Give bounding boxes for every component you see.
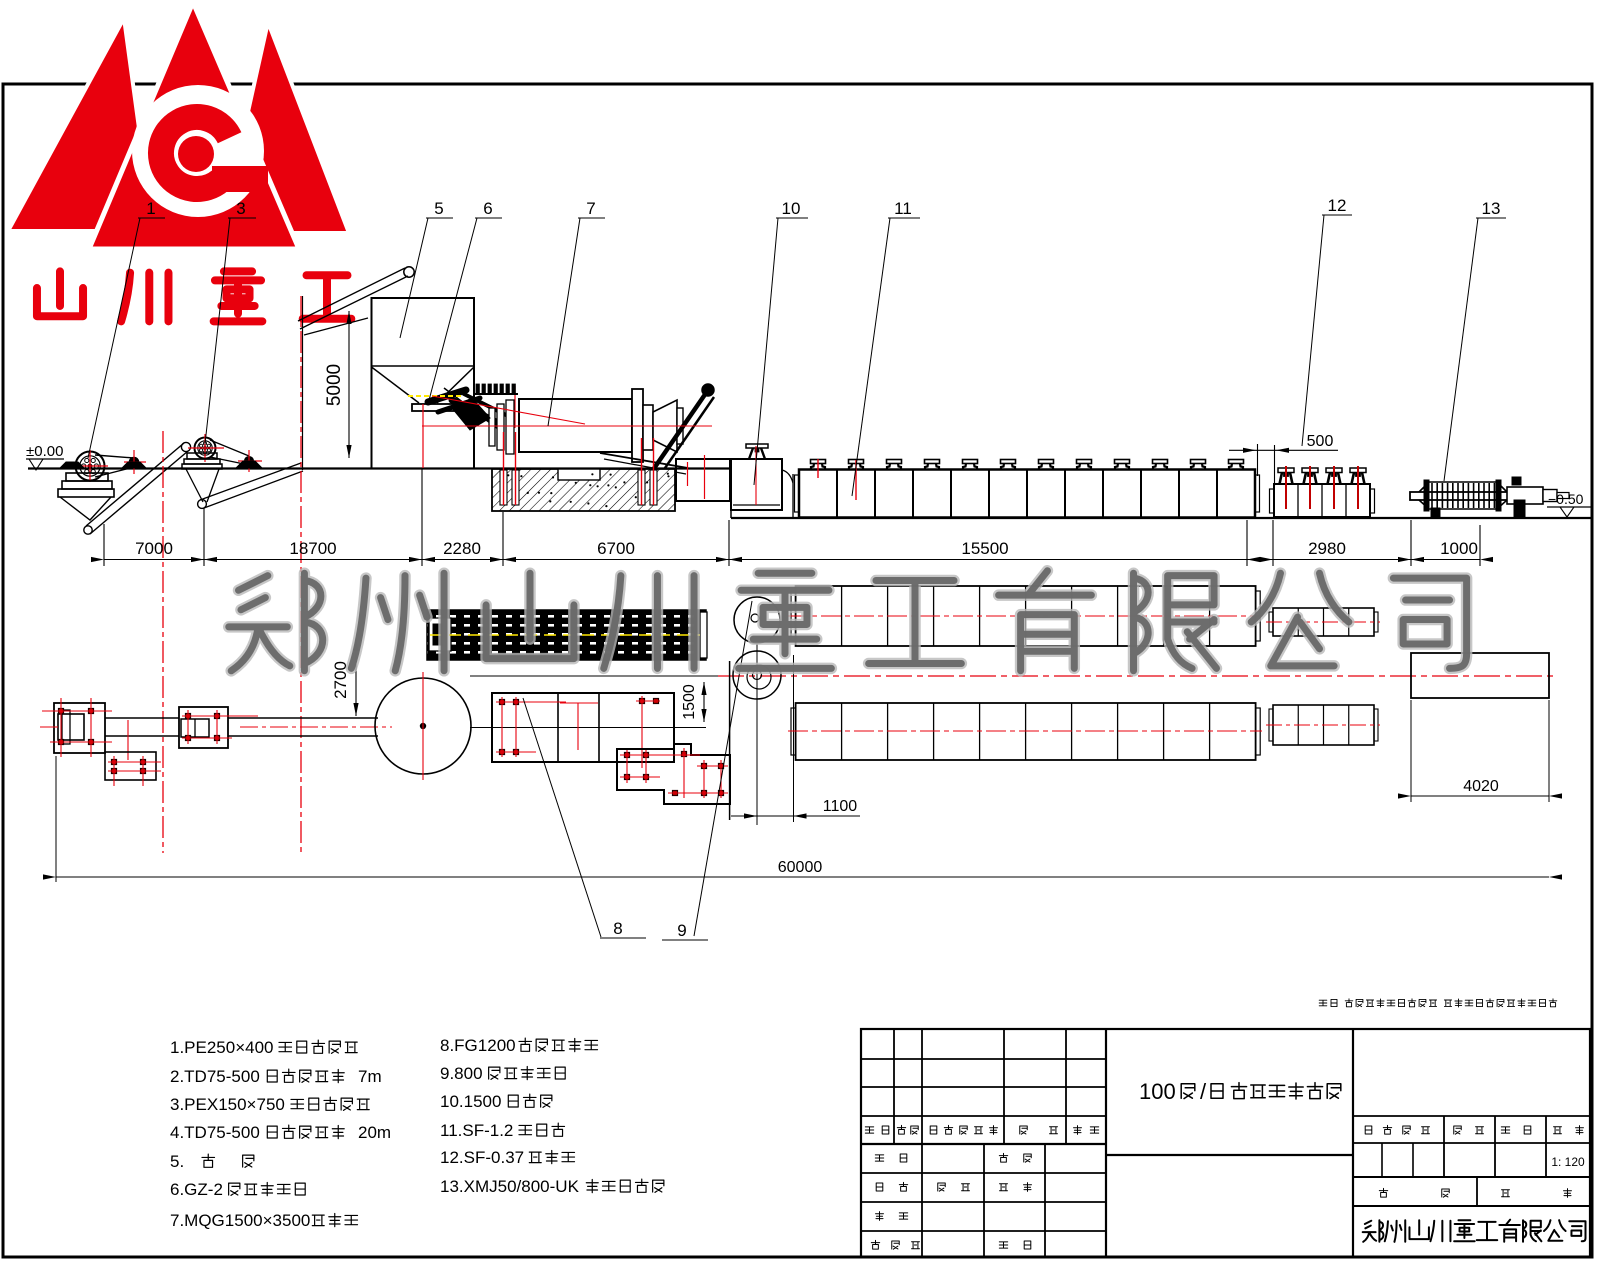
svg-text:13.XMJ50/800-UK: 13.XMJ50/800-UK bbox=[440, 1177, 580, 1196]
svg-text:1100: 1100 bbox=[823, 798, 858, 815]
svg-text:2280: 2280 bbox=[443, 539, 481, 558]
svg-text:6700: 6700 bbox=[597, 539, 635, 558]
svg-text:1: 1 bbox=[146, 199, 155, 218]
svg-text:10: 10 bbox=[782, 199, 801, 218]
svg-text:7.MQG1500×3500: 7.MQG1500×3500 bbox=[170, 1211, 310, 1230]
svg-text:500: 500 bbox=[1307, 433, 1334, 450]
svg-text:9.800: 9.800 bbox=[440, 1064, 483, 1083]
svg-text:±0.00: ±0.00 bbox=[26, 443, 63, 460]
svg-text:−0.50: −0.50 bbox=[1548, 491, 1584, 507]
svg-text:11.SF-1.2: 11.SF-1.2 bbox=[440, 1121, 513, 1140]
svg-text:5.: 5. bbox=[170, 1152, 184, 1171]
svg-text:6: 6 bbox=[483, 199, 492, 218]
svg-text:7: 7 bbox=[586, 199, 595, 218]
svg-text:2980: 2980 bbox=[1308, 539, 1346, 558]
svg-text:2.TD75-500: 2.TD75-500 bbox=[170, 1067, 260, 1086]
svg-text:7000: 7000 bbox=[135, 539, 173, 558]
svg-text:3.PEX150×750: 3.PEX150×750 bbox=[170, 1095, 285, 1114]
svg-text:8.FG1200: 8.FG1200 bbox=[440, 1036, 516, 1055]
svg-text:8: 8 bbox=[613, 919, 622, 938]
svg-text:12: 12 bbox=[1328, 196, 1347, 215]
svg-text:20m: 20m bbox=[358, 1123, 391, 1142]
svg-text:1.PE250×400: 1.PE250×400 bbox=[170, 1038, 274, 1057]
svg-text:5000: 5000 bbox=[324, 364, 345, 406]
svg-text:11: 11 bbox=[894, 199, 912, 218]
svg-text:3: 3 bbox=[236, 199, 245, 218]
svg-text:5: 5 bbox=[434, 199, 443, 218]
svg-text:/: / bbox=[1200, 1079, 1207, 1104]
svg-text:12.SF-0.37: 12.SF-0.37 bbox=[440, 1148, 524, 1167]
svg-text:4.TD75-500: 4.TD75-500 bbox=[170, 1123, 260, 1142]
svg-text:100: 100 bbox=[1139, 1079, 1176, 1104]
svg-text:1: 120: 1: 120 bbox=[1551, 1155, 1585, 1169]
svg-text:4020: 4020 bbox=[1463, 778, 1499, 795]
svg-text:7m: 7m bbox=[358, 1067, 382, 1086]
svg-text:60000: 60000 bbox=[778, 859, 823, 876]
svg-text:1500: 1500 bbox=[681, 684, 698, 720]
svg-text:1000: 1000 bbox=[1440, 539, 1478, 558]
svg-text:18700: 18700 bbox=[289, 539, 336, 558]
svg-text:6.GZ-2: 6.GZ-2 bbox=[170, 1180, 223, 1199]
svg-text:10.1500: 10.1500 bbox=[440, 1092, 501, 1111]
svg-text:9: 9 bbox=[677, 921, 686, 940]
svg-text:15500: 15500 bbox=[961, 539, 1008, 558]
svg-text:13: 13 bbox=[1482, 199, 1501, 218]
